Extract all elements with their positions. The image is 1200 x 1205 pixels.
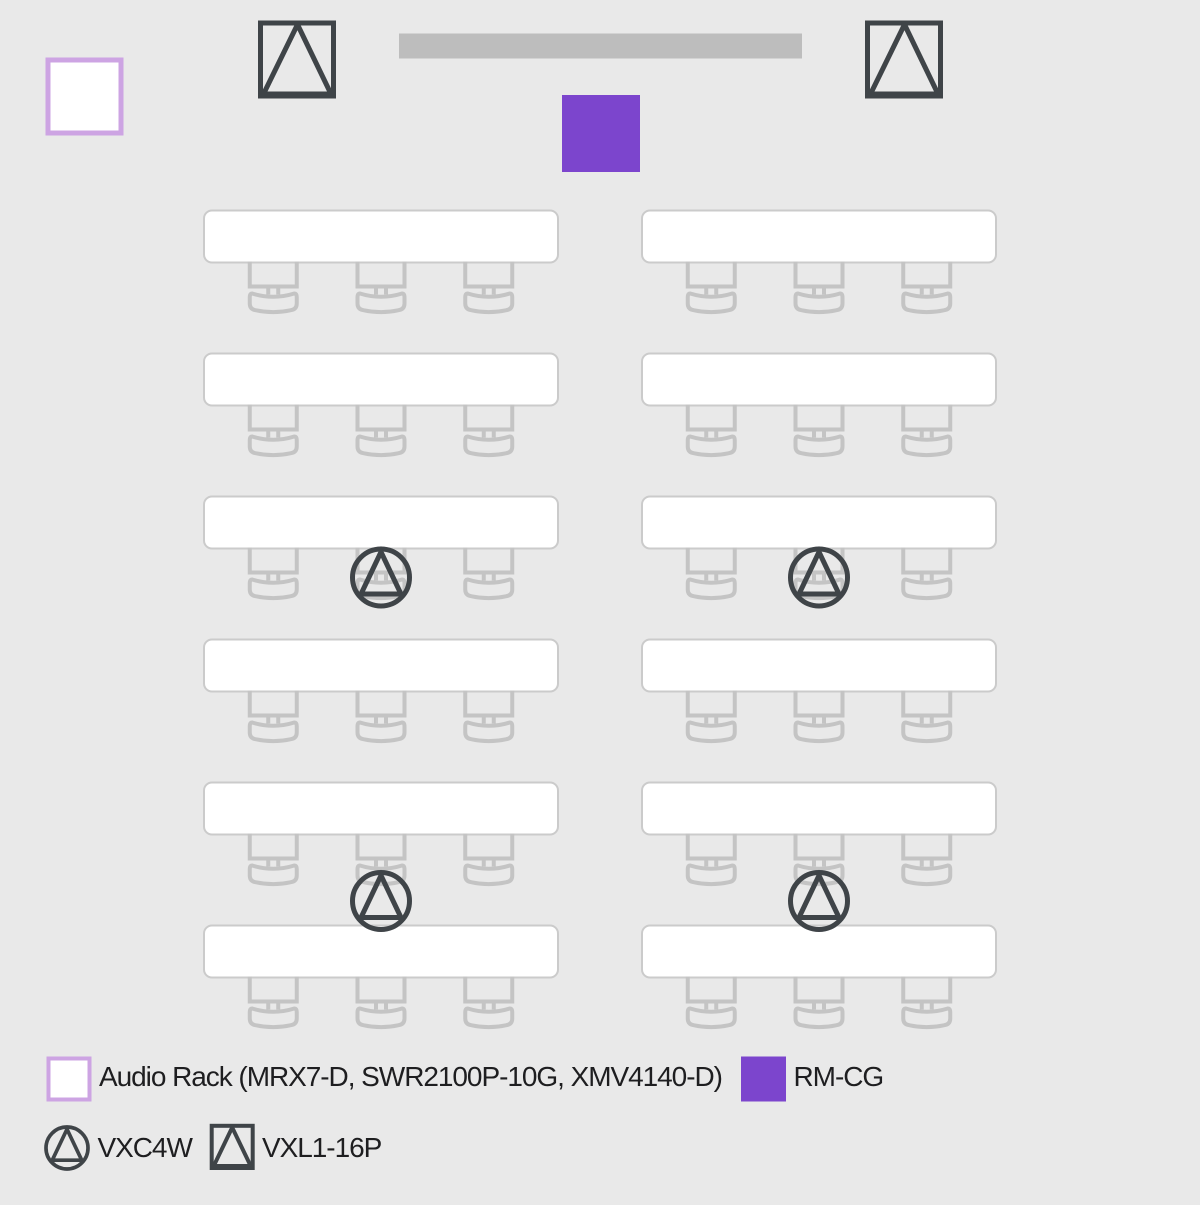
svg-text:VXC4W: VXC4W bbox=[98, 1132, 194, 1163]
svg-text:VXL1-16P: VXL1-16P bbox=[262, 1132, 382, 1163]
svg-text:RM-CG: RM-CG bbox=[794, 1061, 884, 1092]
svg-text:Audio Rack (MRX7-D, SWR2100P-1: Audio Rack (MRX7-D, SWR2100P-10G, XMV414… bbox=[99, 1061, 722, 1092]
